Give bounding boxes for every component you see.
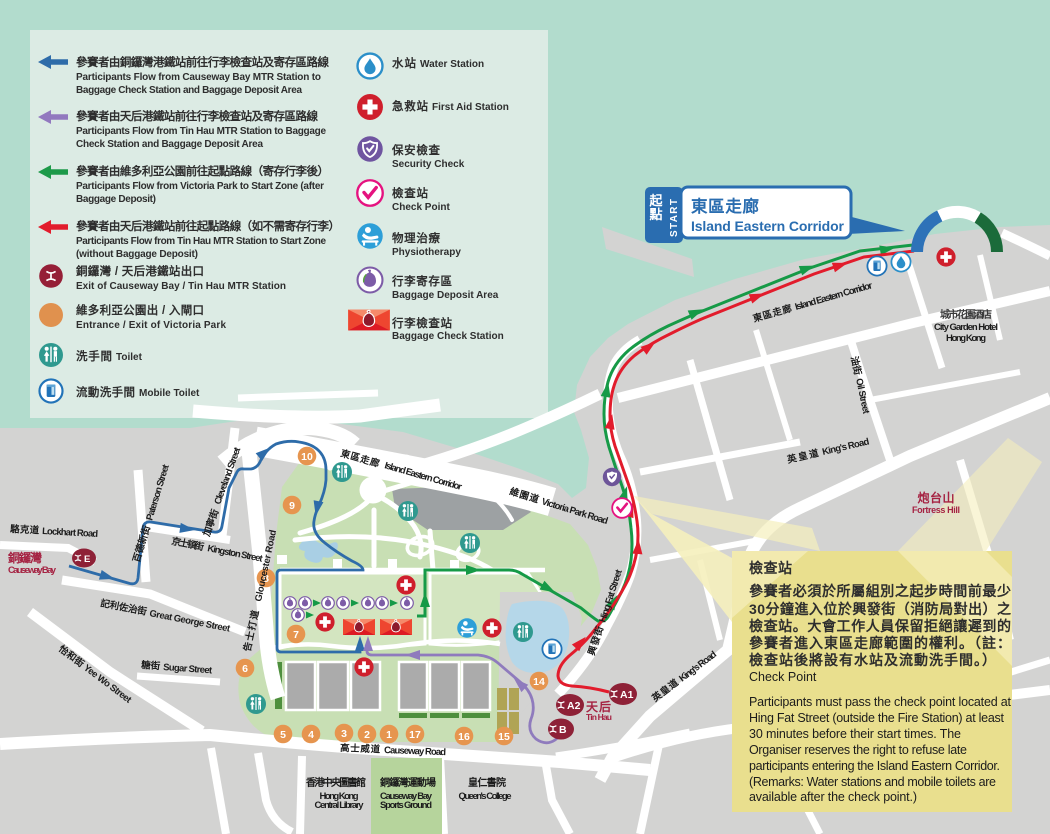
svg-text:檢查站。大會工作人員保留拒絕讓遲到的: 檢查站。大會工作人員保留拒絕讓遲到的 bbox=[749, 618, 1011, 634]
svg-text:Central Library: Central Library bbox=[315, 800, 365, 811]
svg-text:Hong Kong: Hong Kong bbox=[946, 333, 986, 344]
svg-text:E: E bbox=[84, 554, 90, 565]
svg-text:1: 1 bbox=[386, 729, 392, 741]
svg-text:Baggage Check Station: Baggage Check Station bbox=[392, 331, 504, 342]
svg-text:糖街: 糖街 bbox=[141, 659, 161, 672]
svg-text:17: 17 bbox=[409, 729, 421, 741]
svg-text:14: 14 bbox=[533, 676, 545, 688]
svg-text:Causeway Road: Causeway Road bbox=[384, 745, 447, 758]
svg-text:Mobile Toilet: Mobile Toilet bbox=[139, 388, 200, 399]
svg-text:30 minutes before their start: 30 minutes before their start times. The bbox=[749, 727, 961, 741]
svg-text:參賽者由銅鑼灣港鐵站前往行李檢查站及寄存區路線: 參賽者由銅鑼灣港鐵站前往行李檢查站及寄存區路線 bbox=[76, 55, 330, 69]
svg-text:銅鑼灣運動場: 銅鑼灣運動場 bbox=[380, 776, 436, 789]
svg-text:START: START bbox=[669, 199, 680, 237]
svg-text:洗手間: 洗手間 bbox=[76, 349, 112, 363]
svg-text:Exit of Causeway Bay / Tin Hau: Exit of Causeway Bay / Tin Hau MTR Stati… bbox=[76, 281, 286, 292]
svg-text:A1: A1 bbox=[620, 689, 634, 701]
svg-text:炮台山: 炮台山 bbox=[918, 490, 955, 505]
svg-text:Toilet: Toilet bbox=[116, 352, 143, 363]
svg-text:participants entering the Isla: participants entering the Island Eastern… bbox=[749, 759, 1000, 773]
svg-text:Security Check: Security Check bbox=[392, 159, 465, 170]
svg-text:Hing Fat Street (outside the F: Hing Fat Street (outside the Fire Statio… bbox=[749, 711, 1005, 725]
svg-text:Baggage Check Station and Bagg: Baggage Check Station and Baggage Deposi… bbox=[76, 85, 302, 96]
svg-text:Island Eastern Corridor: Island Eastern Corridor bbox=[691, 218, 845, 234]
svg-text:9: 9 bbox=[289, 500, 295, 512]
svg-text:16: 16 bbox=[458, 731, 470, 743]
svg-text:Physiotherapy: Physiotherapy bbox=[392, 247, 461, 258]
svg-text:參賽者進入東區走廊範圍的權利。（註：: 參賽者進入東區走廊範圍的權利。（註： bbox=[749, 635, 1011, 651]
svg-text:參賽者由維多利亞公園前往起點路線（寄存行李後）: 參賽者由維多利亞公園前往起點路線（寄存行李後） bbox=[76, 164, 329, 178]
svg-text:檢查站後將設有水站及流動洗手間。）: 檢查站後將設有水站及流動洗手間。） bbox=[749, 652, 996, 668]
svg-text:東區走廊: 東區走廊 bbox=[691, 196, 759, 216]
svg-text:保安檢查: 保安檢查 bbox=[391, 143, 441, 157]
svg-text:10: 10 bbox=[301, 451, 313, 463]
svg-text:(Remarks: Water stations and: (Remarks: Water stations and mobile toil… bbox=[749, 775, 996, 789]
svg-text:Queen's College: Queen's College bbox=[459, 791, 512, 802]
svg-text:Check Point: Check Point bbox=[392, 202, 450, 213]
svg-text:A2: A2 bbox=[567, 700, 581, 712]
svg-text:Participants Flow from Tin Hau: Participants Flow from Tin Hau MTR Stati… bbox=[76, 236, 326, 247]
svg-text:行李寄存區: 行李寄存區 bbox=[391, 274, 453, 288]
svg-text:available after the check poin: available after the check point.) bbox=[749, 790, 917, 804]
svg-text:銅鑼灣: 銅鑼灣 bbox=[7, 550, 42, 565]
svg-text:Participants Flow from Tin Hau: Participants Flow from Tin Hau MTR Stati… bbox=[76, 126, 326, 137]
svg-text:15: 15 bbox=[498, 731, 510, 743]
svg-text:起: 起 bbox=[648, 193, 663, 208]
svg-text:Entrance / Exit of Victoria Pa: Entrance / Exit of Victoria Park bbox=[76, 320, 226, 331]
svg-text:香港中央圖書館: 香港中央圖書館 bbox=[306, 776, 366, 789]
svg-text:6: 6 bbox=[242, 663, 248, 675]
svg-text:Check Point: Check Point bbox=[749, 670, 817, 684]
svg-text:參賽者必須於所屬組別之起步時間前最少: 參賽者必須於所屬組別之起步時間前最少 bbox=[749, 583, 1011, 599]
svg-text:30分鐘進入位於興發街（消防局對出）之: 30分鐘進入位於興發街（消防局對出）之 bbox=[749, 601, 1011, 617]
svg-text:7: 7 bbox=[293, 629, 299, 641]
svg-text:Check Station and Baggage Depo: Check Station and Baggage Deposit Area bbox=[76, 139, 263, 150]
svg-text:5: 5 bbox=[280, 729, 286, 741]
svg-text:參賽者由天后港鐵站前往行李檢查站及寄存區路線: 參賽者由天后港鐵站前往行李檢查站及寄存區路線 bbox=[76, 109, 319, 123]
svg-text:皇仁書院: 皇仁書院 bbox=[468, 776, 506, 789]
svg-text:Tin Hau: Tin Hau bbox=[586, 712, 612, 722]
svg-text:檢查站: 檢查站 bbox=[749, 560, 792, 576]
svg-text:City Garden Hotel: City Garden Hotel bbox=[934, 322, 998, 333]
svg-text:B: B bbox=[559, 724, 567, 736]
svg-text:Baggage Deposit Area: Baggage Deposit Area bbox=[392, 290, 499, 301]
svg-text:Participants Flow from Victori: Participants Flow from Victoria Park to … bbox=[76, 181, 324, 192]
svg-text:Water Station: Water Station bbox=[420, 59, 484, 70]
svg-text:3: 3 bbox=[341, 728, 347, 740]
svg-text:點: 點 bbox=[649, 207, 662, 222]
svg-text:(without Baggage Deposit): (without Baggage Deposit) bbox=[76, 249, 198, 260]
svg-text:城市花園酒店: 城市花園酒店 bbox=[940, 308, 992, 321]
svg-text:水站: 水站 bbox=[392, 56, 417, 70]
svg-text:銅鑼灣 / 天后港鐵站出口: 銅鑼灣 / 天后港鐵站出口 bbox=[76, 264, 204, 278]
svg-text:Sports Ground: Sports Ground bbox=[380, 800, 432, 811]
svg-text:First Aid Station: First Aid Station bbox=[432, 102, 509, 113]
svg-text:Participants must pass the che: Participants must pass the check point l… bbox=[749, 695, 1012, 709]
svg-text:高士威道: 高士威道 bbox=[340, 742, 381, 755]
svg-text:參賽者由天后港鐵站前往起點路線（如不需寄存行李）: 參賽者由天后港鐵站前往起點路線（如不需寄存行李） bbox=[76, 219, 340, 233]
svg-text:駱克道: 駱克道 bbox=[9, 523, 40, 537]
svg-text:行李檢查站: 行李檢查站 bbox=[391, 316, 453, 330]
svg-text:Fortress Hill: Fortress Hill bbox=[912, 505, 960, 515]
svg-text:Baggage Deposit): Baggage Deposit) bbox=[76, 194, 156, 205]
svg-text:流動洗手間: 流動洗手間 bbox=[76, 385, 135, 399]
svg-text:Participants Flow from Causewa: Participants Flow from Causeway Bay MTR … bbox=[76, 72, 321, 83]
svg-text:物理治療: 物理治療 bbox=[392, 231, 441, 245]
svg-text:檢查站: 檢查站 bbox=[392, 186, 429, 200]
svg-text:4: 4 bbox=[308, 729, 314, 741]
svg-text:Organiser reserves the right t: Organiser reserves the right to refuse l… bbox=[749, 743, 967, 757]
svg-text:2: 2 bbox=[364, 729, 370, 741]
svg-text:維多利亞公園出 / 入閘口: 維多利亞公園出 / 入閘口 bbox=[76, 303, 204, 317]
svg-text:Causeway Bay: Causeway Bay bbox=[8, 565, 57, 576]
svg-text:急救站: 急救站 bbox=[392, 99, 429, 113]
